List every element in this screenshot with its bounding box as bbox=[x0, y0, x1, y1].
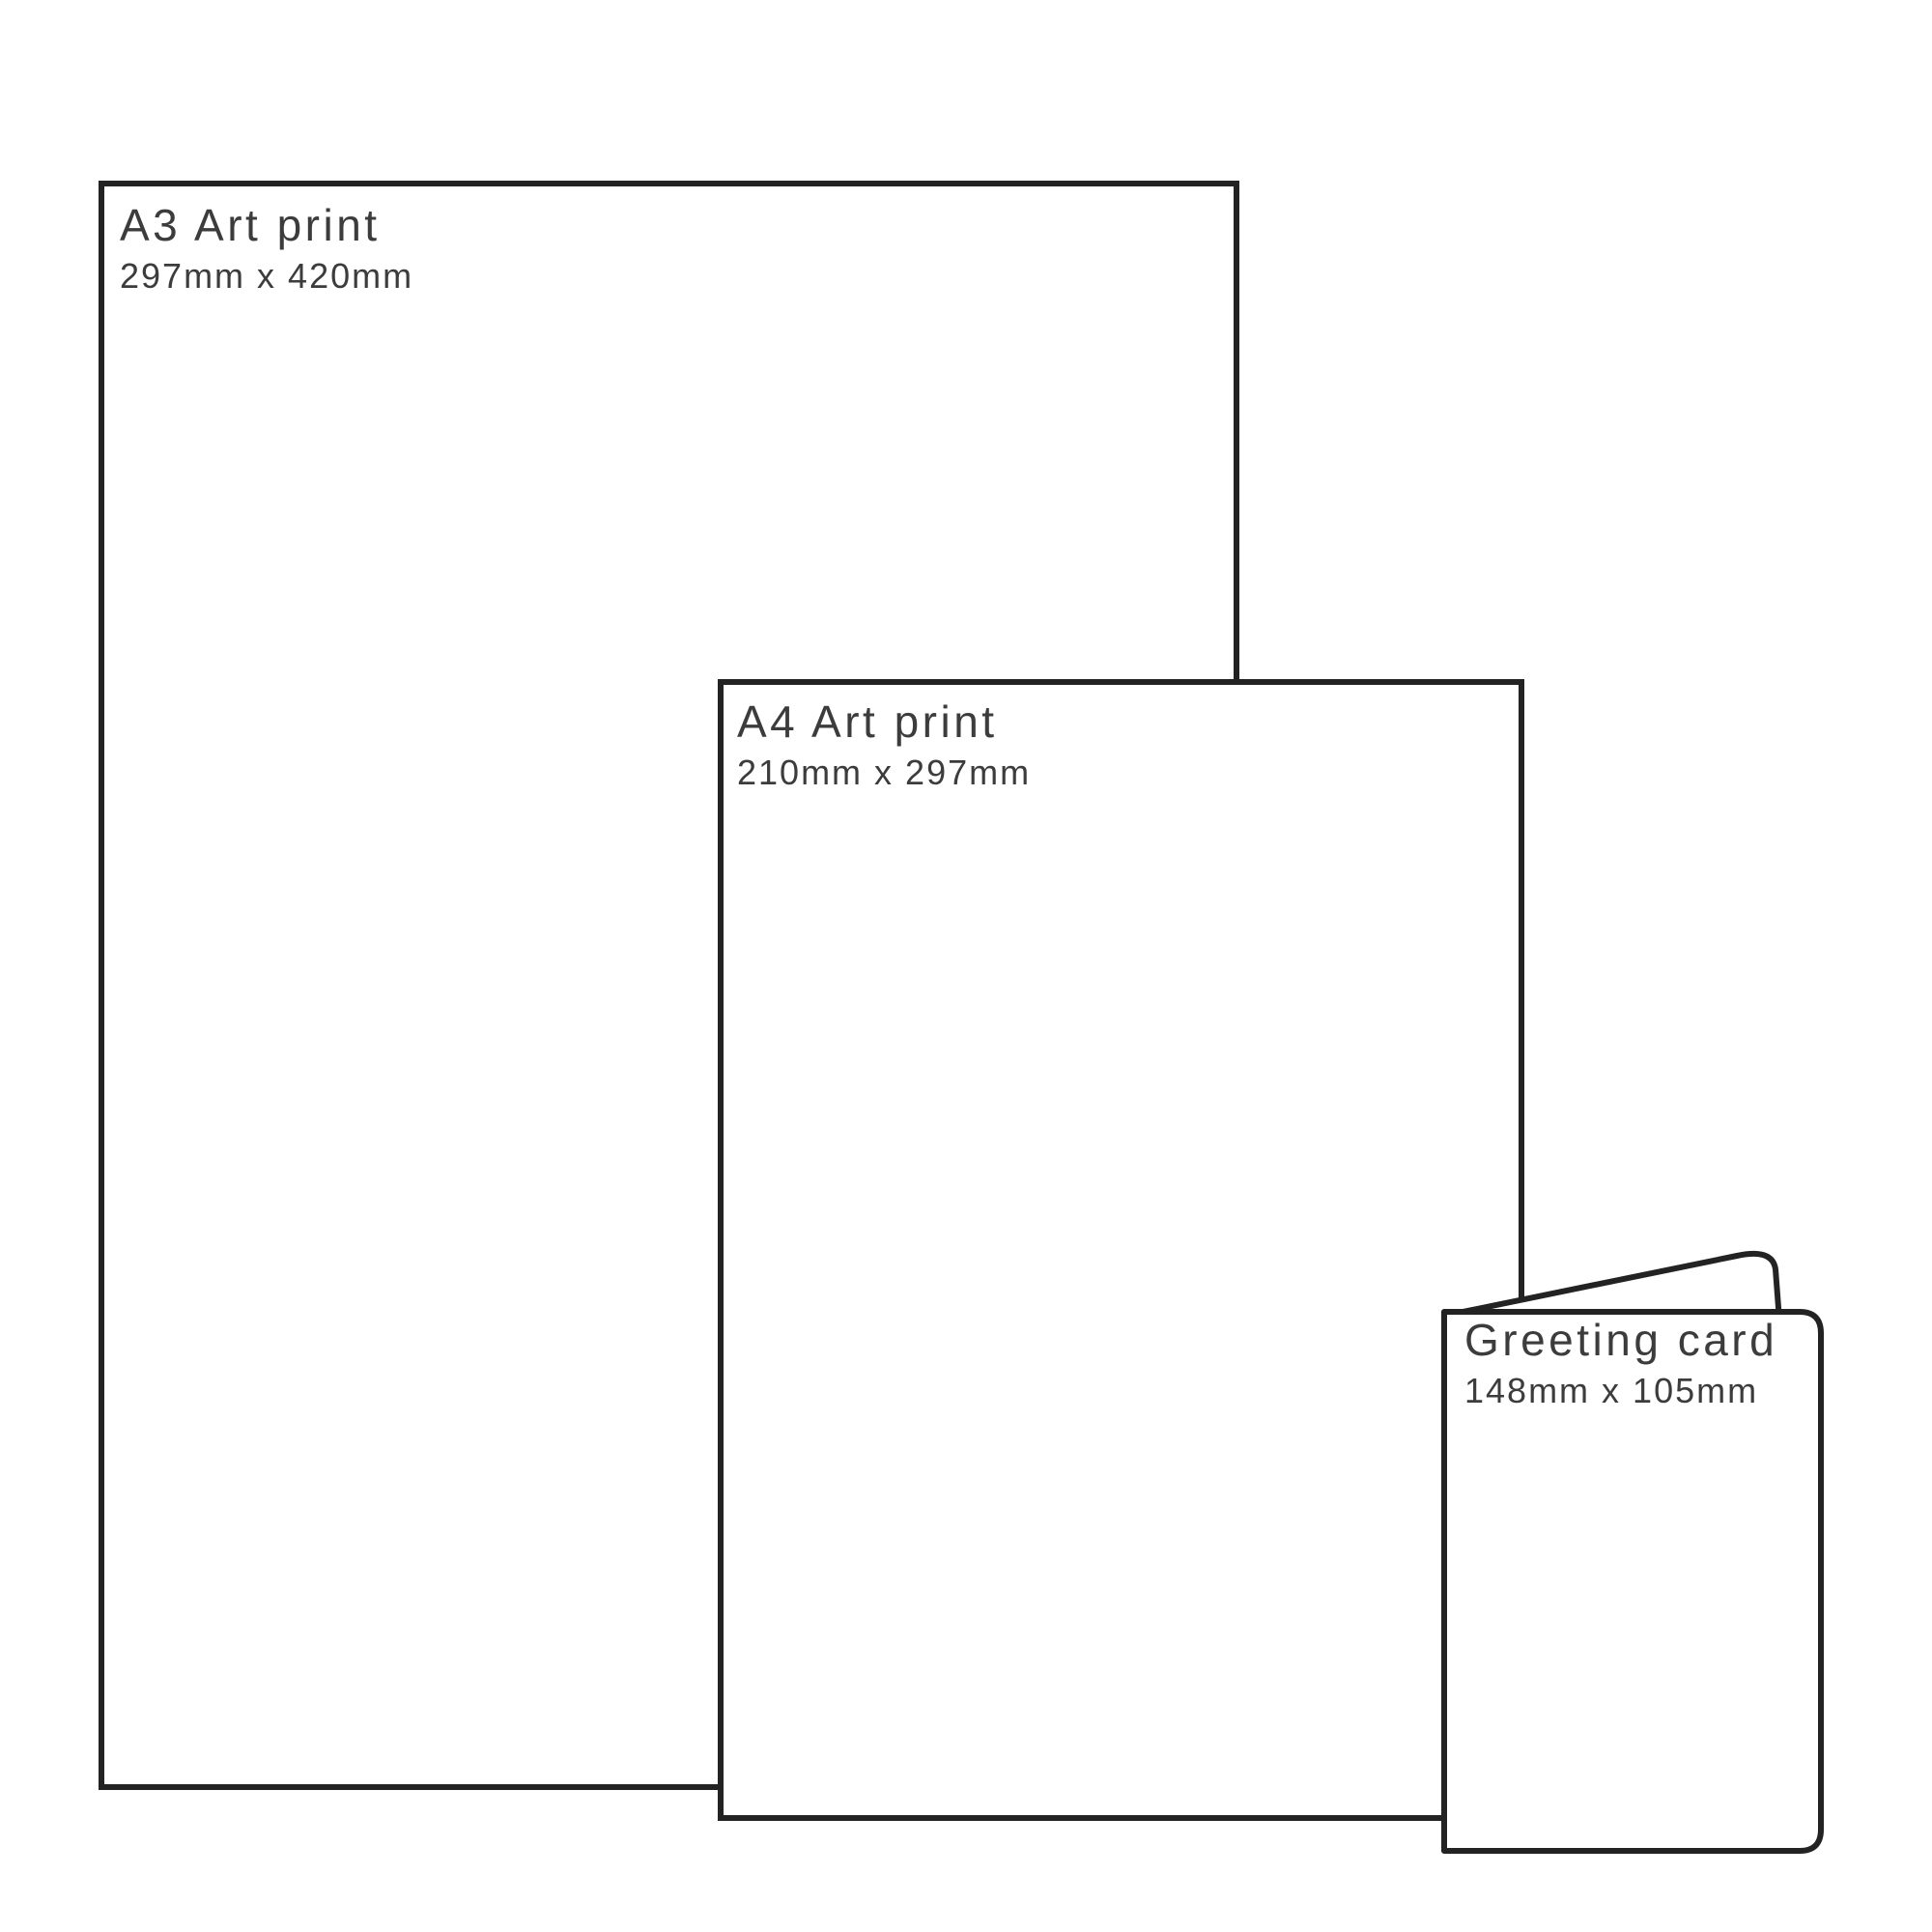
a3-print-dimensions: 297mm x 420mm bbox=[120, 259, 413, 294]
a3-print-title: A3 Art print bbox=[120, 203, 413, 247]
a4-print-dimensions: 210mm x 297mm bbox=[737, 755, 1031, 790]
a3-print-label: A3 Art print 297mm x 420mm bbox=[120, 203, 413, 294]
size-comparison-diagram: A3 Art print 297mm x 420mm A4 Art print … bbox=[0, 0, 1932, 1932]
greeting-card-title: Greeting card bbox=[1464, 1318, 1777, 1362]
a4-print-label: A4 Art print 210mm x 297mm bbox=[737, 699, 1031, 790]
a4-print-outline bbox=[721, 682, 1521, 1818]
a4-print-title: A4 Art print bbox=[737, 699, 1031, 744]
greeting-card-dimensions: 148mm x 105mm bbox=[1464, 1374, 1777, 1408]
greeting-card-label: Greeting card 148mm x 105mm bbox=[1464, 1318, 1777, 1408]
